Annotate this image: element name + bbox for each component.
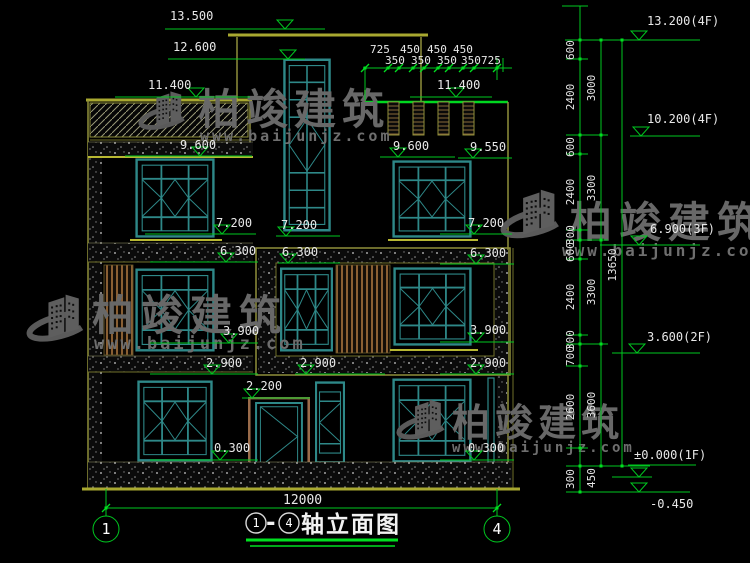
- dim-label: 600: [564, 40, 577, 60]
- dim-label: 3300: [585, 175, 598, 202]
- title-axis-from: 1: [252, 516, 259, 530]
- level-label: 6.900(3F): [650, 222, 715, 236]
- title-axis-to: 4: [285, 516, 292, 530]
- building-structure: [2, 2, 520, 489]
- level-marker-10200: 10.200(4F): [630, 112, 719, 136]
- parapet-slot: [463, 102, 474, 135]
- dim-label: 3300: [585, 279, 598, 306]
- dim-label: 350: [437, 54, 457, 67]
- level-label: 7.200: [468, 216, 504, 230]
- watermark-bottom-right: 柏竣建筑 www.baijunjz.com: [397, 400, 635, 456]
- level-marker-neg450: -0.450: [628, 483, 693, 511]
- title-block: 1 - 4 轴立面图: [246, 510, 401, 546]
- level-label: 0.300: [468, 441, 504, 455]
- level-label: 6.300: [220, 244, 256, 258]
- level-label: 2.200: [246, 379, 282, 393]
- level-label: 2.900: [470, 356, 506, 370]
- elevation-drawing-canvas: 柏竣建筑 www.baijunjz.com 柏竣建筑 www.baijunjz.…: [0, 0, 750, 563]
- watermark-url: www.baijunjz.com: [94, 334, 306, 354]
- axis-bubble-label: 4: [492, 520, 501, 538]
- level-label: 3.600(2F): [647, 330, 712, 344]
- dim-label-total-height: 13650: [606, 248, 619, 281]
- dim-label: 2400: [564, 284, 577, 311]
- dim-label-total-width: 12000: [283, 493, 322, 508]
- level-label: ±0.000(1F): [634, 448, 706, 462]
- dim-label: 450: [585, 468, 598, 488]
- watermark-url: www.baijunjz.com: [562, 241, 750, 260]
- dim-label: 3600: [585, 392, 598, 419]
- title-dash: -: [266, 510, 278, 536]
- parapet-slot: [413, 102, 424, 135]
- window-1f-left: [139, 382, 212, 461]
- dim-label: 350: [385, 54, 405, 67]
- level-marker-13500: 13.500: [165, 9, 325, 29]
- brand-logo-icon: [501, 190, 567, 241]
- elevation-markers: 13.500 12.600 11.400 11.400 9.600 9.600 …: [115, 9, 514, 460]
- window-3f-left: [137, 160, 214, 237]
- level-marker-0300-left: 0.300: [150, 441, 258, 460]
- level-label: 9.550: [470, 140, 506, 154]
- dim-label: 300: [564, 225, 577, 245]
- watermark-brand: 柏竣建筑: [452, 401, 624, 445]
- entry-door: [249, 398, 309, 472]
- brand-logo-icon: [27, 295, 91, 344]
- level-label: 11.400: [437, 78, 480, 92]
- window-3f-right: [394, 162, 471, 237]
- level-label: 0.300: [214, 441, 250, 455]
- level-marker-9550: 9.550: [458, 140, 512, 158]
- dim-label: 700: [564, 346, 577, 366]
- window-1f-narrow: [316, 383, 344, 463]
- level-label: 13.200(4F): [647, 14, 719, 28]
- axis-bubble-label: 1: [101, 520, 110, 538]
- parapet-slot: [438, 102, 449, 135]
- level-label: 9.600: [393, 139, 429, 153]
- brand-logo-icon: [397, 400, 451, 442]
- level-label: 3.900: [470, 323, 506, 337]
- dim-label: 3000: [585, 75, 598, 102]
- level-label: 12.600: [173, 40, 216, 54]
- dim-label: 600: [564, 242, 577, 262]
- level-label: 6.300: [282, 245, 318, 259]
- level-marker-3600: 3.600(2F): [612, 330, 712, 353]
- level-marker-2200: 2.200: [242, 379, 310, 398]
- drawing-title: 轴立面图: [301, 511, 401, 538]
- level-label: 7.200: [281, 218, 317, 232]
- dim-label: 600: [564, 137, 577, 157]
- level-label: 13.500: [170, 9, 213, 23]
- louver-panel-center: [336, 265, 390, 353]
- dim-label: 300: [564, 469, 577, 489]
- level-label: -0.450: [650, 497, 693, 511]
- dim-label: 350: [411, 54, 431, 67]
- level-label: 7.200: [216, 216, 252, 230]
- window-2f-right: [395, 269, 471, 345]
- level-label: 2.900: [206, 356, 242, 370]
- level-marker-11400-right: 11.400: [410, 78, 492, 97]
- level-label: 2.900: [300, 356, 336, 370]
- level-label: 3.900: [223, 324, 259, 338]
- dim-label: 2400: [564, 84, 577, 111]
- plinth-stone-band: [88, 462, 512, 489]
- dim-label: 725: [481, 54, 501, 67]
- watermark-url: www.baijunjz.com: [200, 127, 393, 145]
- watermark-middle-left: 柏竣建筑 www.baijunjz.com: [27, 291, 306, 354]
- level-label: 10.200(4F): [647, 112, 719, 126]
- level-label: 11.400: [148, 78, 191, 92]
- dim-label: 2600: [564, 394, 577, 421]
- balcony-band-right: [494, 250, 508, 373]
- level-label: 6.300: [470, 246, 506, 260]
- dim-label: 350: [461, 54, 481, 67]
- level-marker-13200: 13.200(4F): [628, 14, 719, 40]
- level-label: 9.600: [180, 138, 216, 152]
- dim-label: 2400: [564, 179, 577, 206]
